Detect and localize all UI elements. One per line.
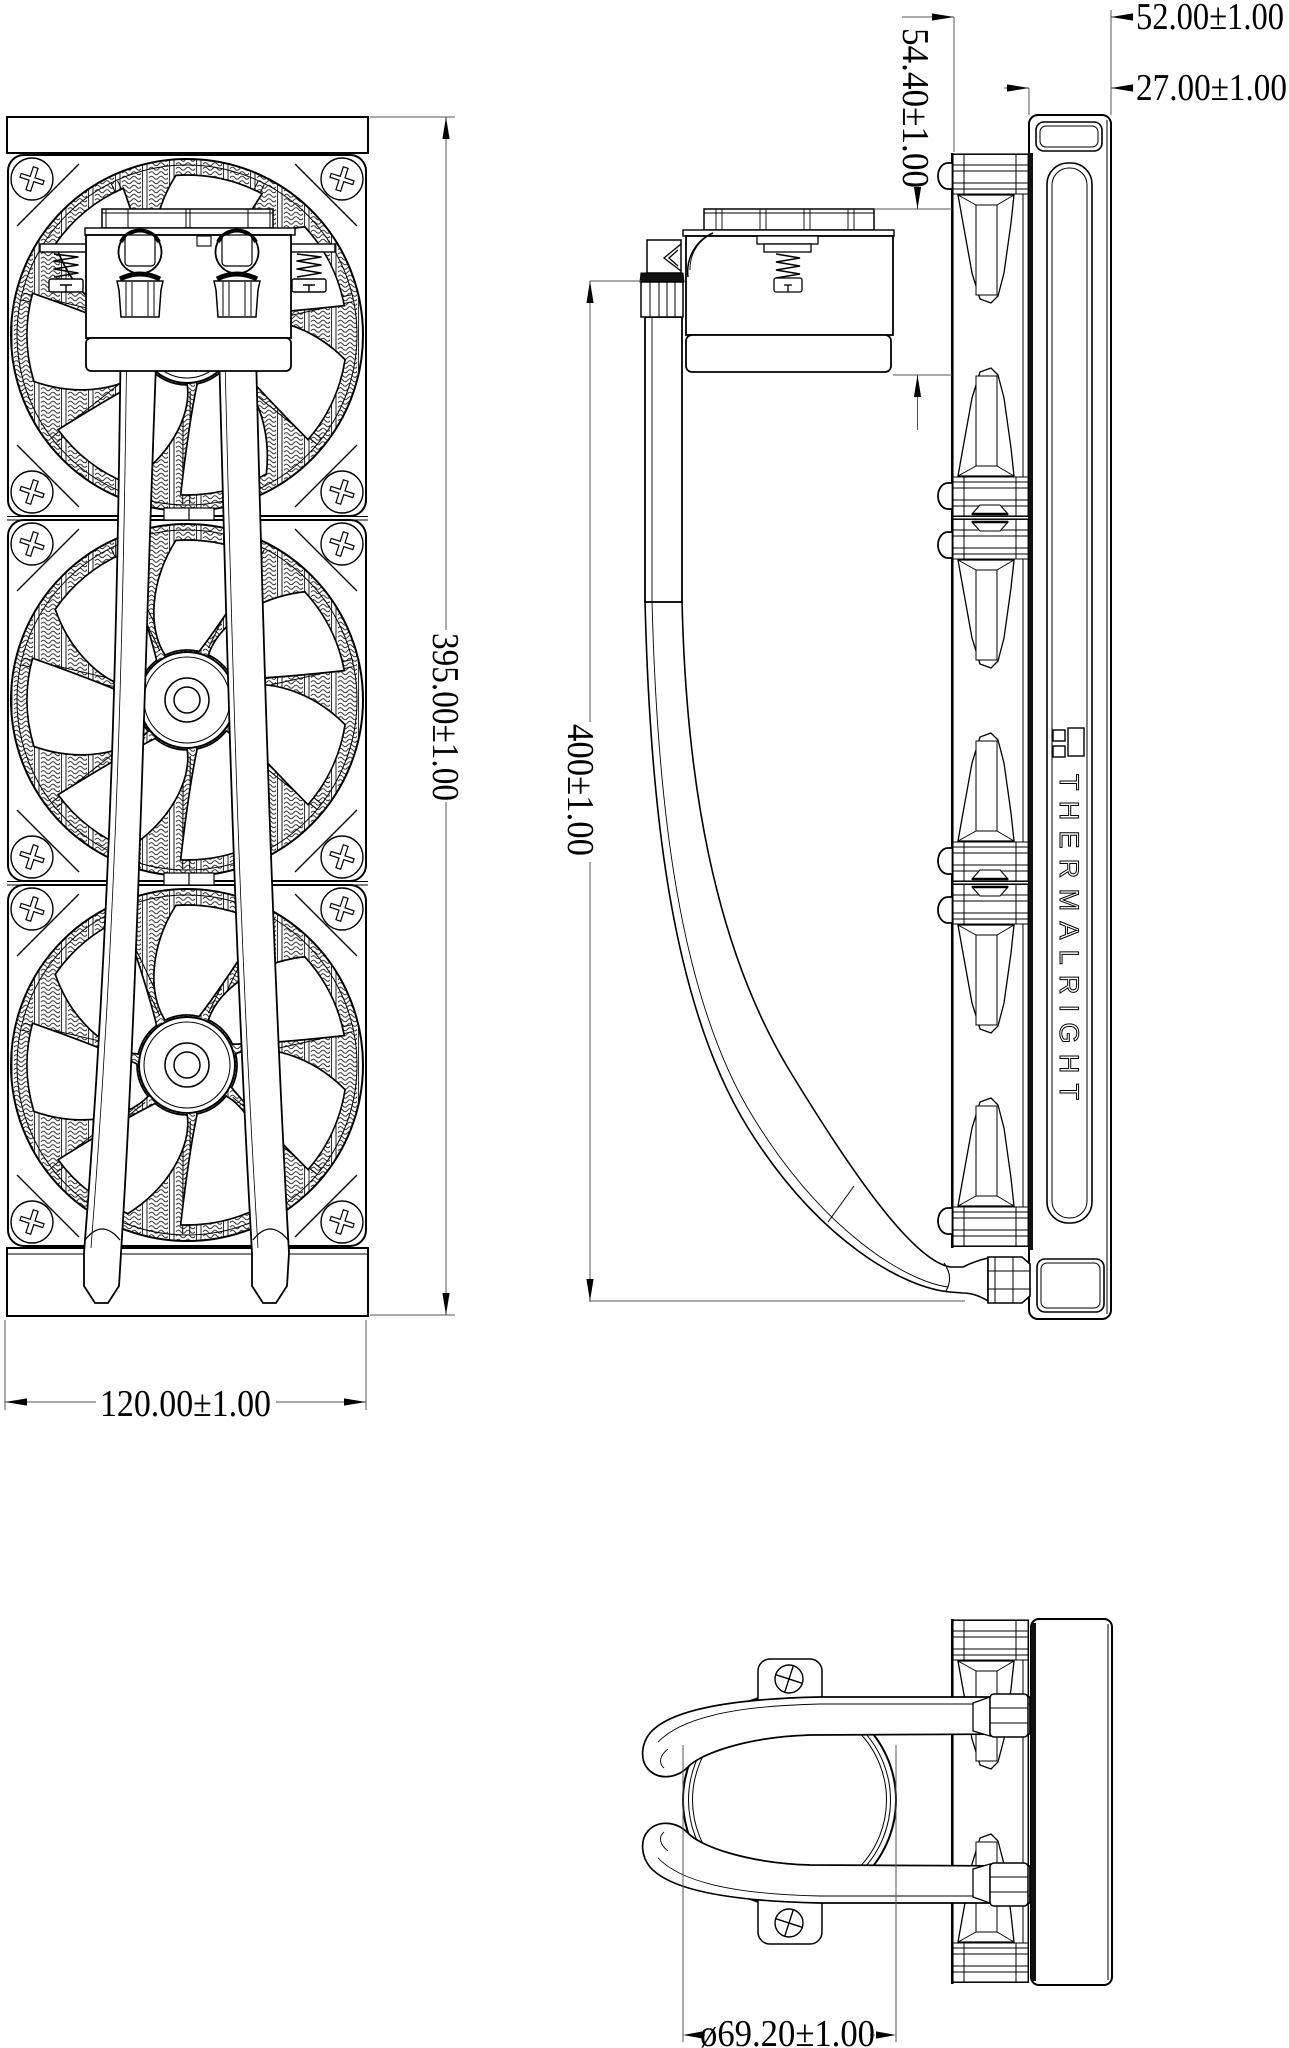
- svg-text:400±1.00: 400±1.00: [559, 724, 601, 856]
- svg-text:120.00±1.00: 120.00±1.00: [100, 1383, 271, 1425]
- svg-text:395.00±1.00: 395.00±1.00: [424, 633, 466, 801]
- svg-text:27.00±1.00: 27.00±1.00: [1136, 67, 1287, 109]
- svg-text:54.40±1.00: 54.40±1.00: [894, 28, 936, 188]
- svg-text:ø69.20±1.00: ø69.20±1.00: [700, 2013, 875, 2048]
- svg-text:52.00±1.00: 52.00±1.00: [1136, 0, 1284, 38]
